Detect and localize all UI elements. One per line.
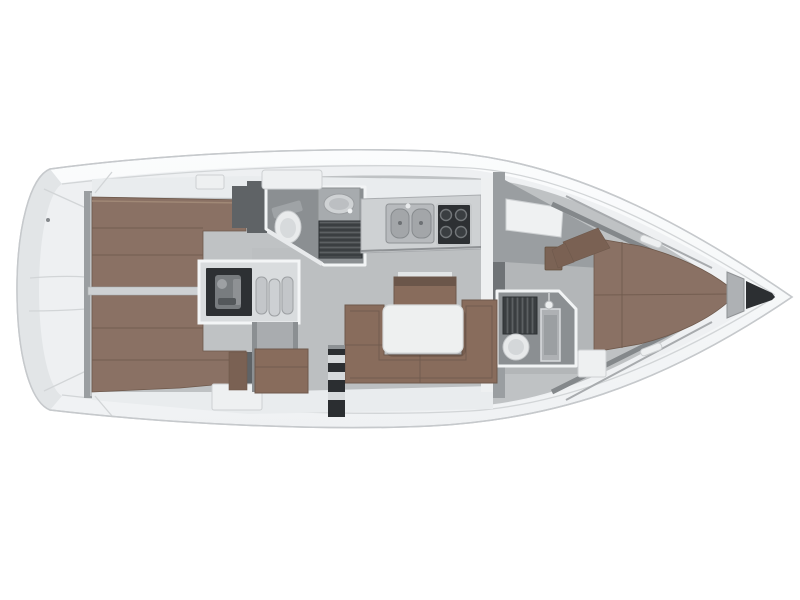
mast-post-band xyxy=(328,392,345,400)
sink-drain xyxy=(398,221,402,225)
deck-cleat xyxy=(46,218,50,222)
mast-post-cap xyxy=(328,345,345,349)
sink-drain xyxy=(419,221,423,225)
mast-post-band xyxy=(328,372,345,380)
forward-head xyxy=(497,291,576,366)
galley-faucet xyxy=(406,204,411,209)
side-deck-top-aft xyxy=(92,176,248,198)
step xyxy=(256,277,267,314)
shower-grate-vertical xyxy=(503,297,537,334)
engine-pulley xyxy=(217,279,227,289)
bench-seat xyxy=(255,349,308,393)
shower-grate xyxy=(319,221,362,258)
salon-table xyxy=(383,305,463,353)
faucet xyxy=(348,209,353,214)
stove-burner xyxy=(456,227,467,238)
step xyxy=(282,277,293,314)
stove-top xyxy=(437,204,471,245)
mast-post-band xyxy=(328,355,345,363)
stove-burner xyxy=(441,210,452,221)
sideboard-dark-band xyxy=(394,277,456,286)
toilet-seat xyxy=(280,218,296,238)
toilet-seat xyxy=(508,339,524,355)
engine xyxy=(215,275,241,309)
stove xyxy=(437,204,471,245)
bow-panel xyxy=(727,272,744,318)
step xyxy=(269,279,280,316)
washbasin-bowl xyxy=(329,198,349,210)
port-bench xyxy=(229,349,308,393)
yacht-floorplan xyxy=(0,0,800,600)
yacht-floorplan-canvas xyxy=(0,0,800,600)
mast-post xyxy=(328,345,345,417)
stove-burner xyxy=(441,227,452,238)
bench-side-cushion xyxy=(229,352,247,390)
companionway-hatch xyxy=(262,170,322,189)
stove-burner xyxy=(456,210,467,221)
shower-door-panel xyxy=(544,315,557,355)
forward-step-box xyxy=(578,350,606,377)
double-sink xyxy=(386,204,434,244)
engine-mount xyxy=(218,298,236,305)
sideboard xyxy=(394,272,456,307)
shower-head xyxy=(545,301,553,309)
washbasin-vanity xyxy=(318,188,360,221)
galley xyxy=(361,195,481,253)
companionway-steps xyxy=(256,277,293,316)
cockpit-hatch xyxy=(196,175,224,189)
